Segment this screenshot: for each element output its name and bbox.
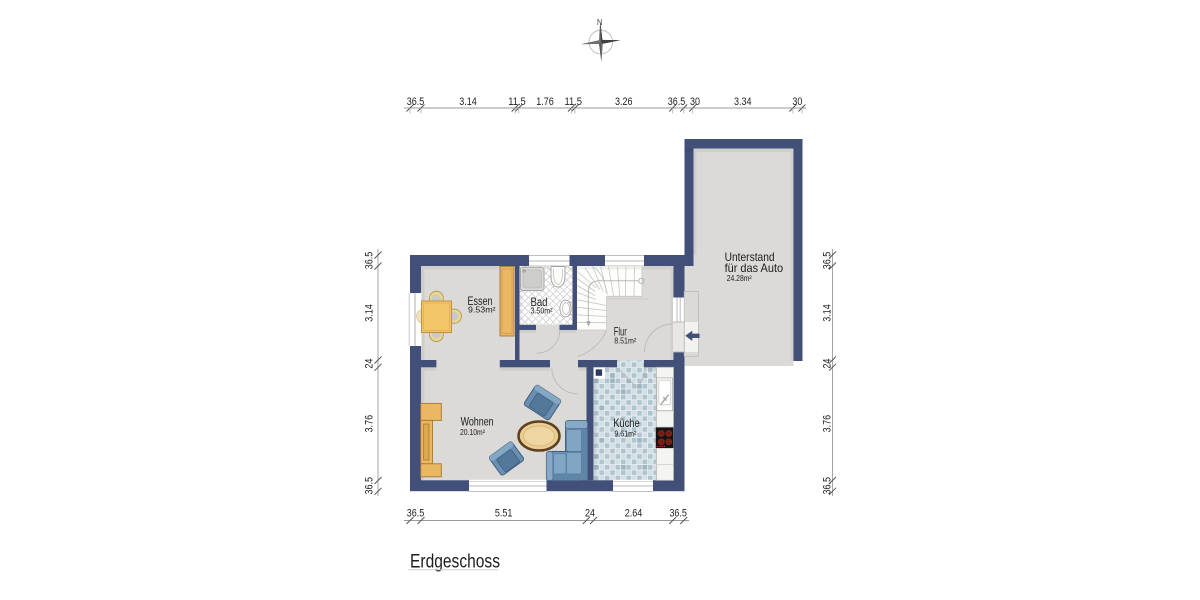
svg-text:30: 30 — [792, 96, 802, 108]
svg-text:Küche: Küche — [613, 417, 640, 430]
svg-text:11.5: 11.5 — [564, 96, 582, 108]
svg-text:36.5: 36.5 — [364, 477, 376, 495]
svg-text:3.34: 3.34 — [734, 96, 752, 108]
svg-text:36.5: 36.5 — [407, 507, 425, 519]
svg-text:9.53m²: 9.53m² — [468, 305, 496, 314]
svg-text:3.14: 3.14 — [821, 304, 833, 322]
svg-text:30: 30 — [690, 96, 700, 108]
svg-text:3.76: 3.76 — [821, 415, 833, 433]
svg-text:36.5: 36.5 — [364, 252, 376, 270]
svg-text:11.5: 11.5 — [508, 96, 526, 108]
svg-text:36.5: 36.5 — [821, 477, 833, 495]
svg-text:36.5: 36.5 — [821, 252, 833, 270]
svg-text:Wohnen: Wohnen — [461, 416, 494, 429]
svg-text:3.14: 3.14 — [364, 304, 376, 322]
svg-text:24: 24 — [364, 359, 376, 369]
svg-text:3.14: 3.14 — [459, 96, 477, 108]
svg-text:24.28m²: 24.28m² — [727, 274, 752, 283]
svg-text:36.5: 36.5 — [407, 96, 425, 108]
svg-text:8.51m²: 8.51m² — [614, 337, 636, 346]
svg-text:5.51: 5.51 — [495, 507, 513, 519]
svg-text:24: 24 — [585, 507, 595, 519]
svg-text:1.76: 1.76 — [536, 96, 554, 108]
svg-text:24: 24 — [821, 359, 833, 369]
svg-text:36.5: 36.5 — [668, 96, 686, 108]
svg-text:N: N — [597, 18, 603, 27]
svg-text:3.50m²: 3.50m² — [531, 307, 553, 316]
svg-text:9.61m²: 9.61m² — [614, 429, 636, 438]
svg-text:2.64: 2.64 — [625, 507, 643, 519]
svg-text:3.76: 3.76 — [364, 415, 376, 433]
svg-text:3.26: 3.26 — [615, 96, 633, 108]
svg-text:36.5: 36.5 — [669, 507, 687, 519]
svg-text:20.10m²: 20.10m² — [460, 428, 485, 437]
